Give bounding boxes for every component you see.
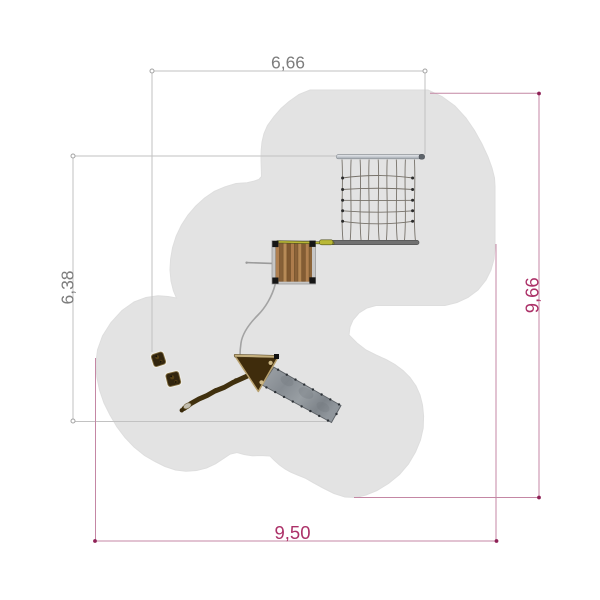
svg-text:6,66: 6,66	[271, 53, 305, 73]
svg-text:9,66: 9,66	[522, 277, 543, 313]
svg-text:6,38: 6,38	[57, 270, 77, 304]
svg-text:9,50: 9,50	[274, 522, 310, 543]
